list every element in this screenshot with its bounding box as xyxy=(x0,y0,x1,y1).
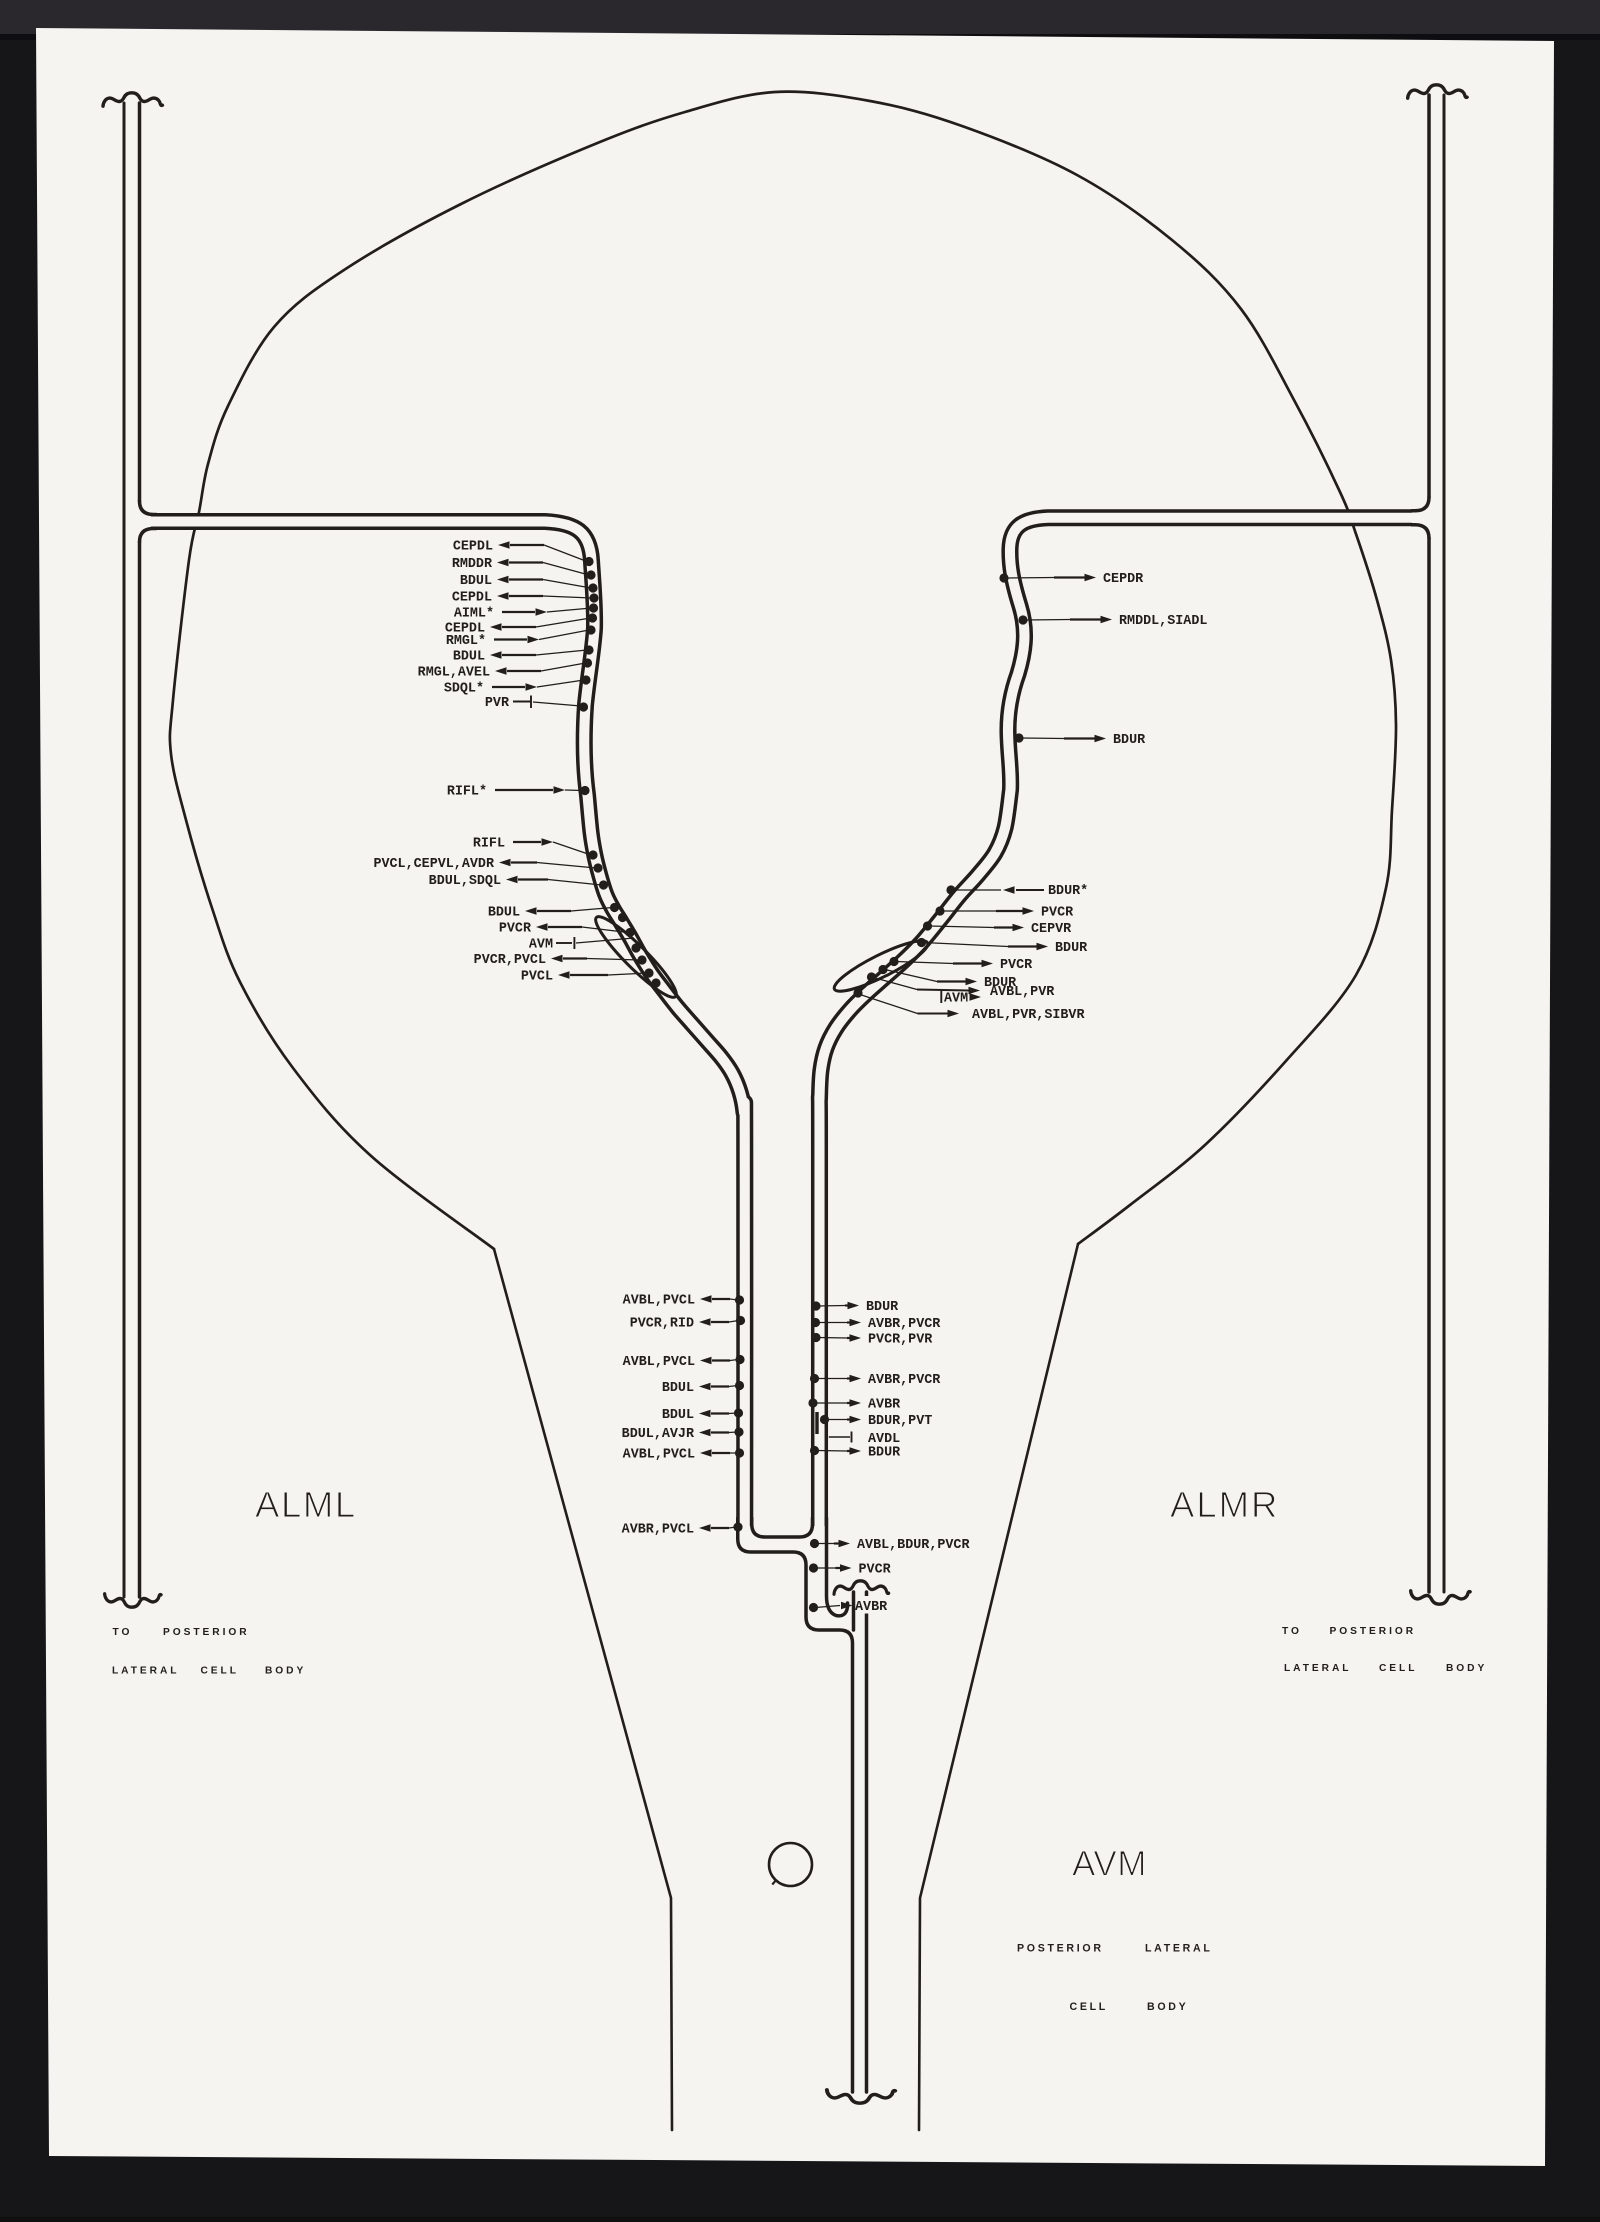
svg-text:RIFL: RIFL xyxy=(473,837,505,852)
svg-text:POSTERIOR: POSTERIOR xyxy=(1330,1626,1417,1637)
svg-text:AVBL,BDUR,PVCR: AVBL,BDUR,PVCR xyxy=(857,1538,970,1553)
svg-text:CELL: CELL xyxy=(1070,2001,1108,2013)
svg-text:BDUL,AVJR: BDUL,AVJR xyxy=(622,1427,695,1442)
svg-text:CEPDR: CEPDR xyxy=(1103,572,1144,587)
svg-text:TO: TO xyxy=(1282,1626,1302,1637)
svg-text:POSTERIOR: POSTERIOR xyxy=(1017,1943,1104,1955)
svg-text:AIML*: AIML* xyxy=(454,607,494,622)
svg-text:LATERAL: LATERAL xyxy=(1145,1943,1213,1955)
svg-text:CEPVR: CEPVR xyxy=(1031,922,1072,937)
svg-text:POSTERIOR: POSTERIOR xyxy=(163,1627,250,1638)
svg-text:AVM: AVM xyxy=(529,938,553,953)
svg-text:PVCR: PVCR xyxy=(499,922,532,937)
svg-text:PVCR: PVCR xyxy=(859,1563,892,1578)
svg-text:LATERAL: LATERAL xyxy=(112,1666,179,1677)
svg-text:AVBL,PVCL: AVBL,PVCL xyxy=(623,1355,695,1370)
svg-text:CEPDL: CEPDL xyxy=(453,540,493,555)
svg-text:AVBL,PVR: AVBL,PVR xyxy=(990,985,1055,1000)
svg-text:RIFL*: RIFL* xyxy=(447,785,487,800)
svg-text:ALMR: ALMR xyxy=(1170,1484,1279,1525)
svg-text:BDUL: BDUL xyxy=(662,1381,694,1396)
svg-text:PVCR: PVCR xyxy=(1000,958,1033,973)
svg-text:BODY: BODY xyxy=(265,1666,306,1677)
svg-text:BDUL: BDUL xyxy=(488,906,520,921)
svg-text:PVCR: PVCR xyxy=(1041,906,1074,921)
svg-text:PVCR,PVR: PVCR,PVR xyxy=(868,1333,933,1348)
svg-text:BODY: BODY xyxy=(1147,2001,1188,2013)
svg-text:PVCR,RID: PVCR,RID xyxy=(630,1317,694,1332)
svg-text:BDUL,SDQL: BDUL,SDQL xyxy=(429,874,501,889)
svg-text:AVBR: AVBR xyxy=(868,1398,901,1413)
svg-text:ALML: ALML xyxy=(255,1484,357,1525)
svg-text:BODY: BODY xyxy=(1446,1663,1487,1674)
svg-text:PVR: PVR xyxy=(485,696,510,711)
svg-text:BDUR: BDUR xyxy=(866,1300,899,1315)
svg-text:AVBR,PVCR: AVBR,PVCR xyxy=(868,1373,941,1388)
svg-text:CEPDL: CEPDL xyxy=(452,591,492,606)
svg-text:AVBR,PVCL: AVBR,PVCL xyxy=(622,1523,694,1538)
svg-text:RMDDR: RMDDR xyxy=(452,557,493,572)
svg-text:SDQL*: SDQL* xyxy=(444,682,484,697)
svg-text:BDUL: BDUL xyxy=(460,574,492,589)
svg-text:PVCL,CEPVL,AVDR: PVCL,CEPVL,AVDR xyxy=(373,857,494,872)
svg-text:BDUL: BDUL xyxy=(453,650,485,665)
svg-text:BDUR,PVT: BDUR,PVT xyxy=(868,1414,932,1429)
svg-text:AVM: AVM xyxy=(944,992,968,1007)
svg-text:PVCR,PVCL: PVCR,PVCL xyxy=(474,953,546,968)
svg-text:BDUR: BDUR xyxy=(1055,941,1088,956)
svg-text:BDUL: BDUL xyxy=(662,1408,694,1423)
svg-text:BDUR: BDUR xyxy=(1113,733,1146,748)
svg-text:CELL: CELL xyxy=(201,1666,239,1677)
svg-text:AVBL,PVR,SIBVR: AVBL,PVR,SIBVR xyxy=(972,1008,1085,1023)
svg-text:AVBR,PVCR: AVBR,PVCR xyxy=(868,1317,941,1332)
svg-text:AVBL,PVCL: AVBL,PVCL xyxy=(623,1448,695,1463)
svg-text:RMGL,AVEL: RMGL,AVEL xyxy=(418,666,490,681)
svg-text:LATERAL: LATERAL xyxy=(1284,1663,1351,1674)
svg-text:BDUR: BDUR xyxy=(868,1446,901,1461)
svg-text:RMGL*: RMGL* xyxy=(446,634,486,649)
svg-text:TO: TO xyxy=(113,1627,133,1638)
svg-text:AVBR: AVBR xyxy=(855,1600,888,1615)
svg-text:AVBL,PVCL: AVBL,PVCL xyxy=(623,1294,695,1309)
svg-text:BDUR*: BDUR* xyxy=(1048,884,1088,899)
svg-text:PVCL: PVCL xyxy=(521,970,553,985)
svg-text:AVM: AVM xyxy=(1072,1845,1147,1884)
svg-text:RMDDL,SIADL: RMDDL,SIADL xyxy=(1119,614,1207,629)
svg-text:CELL: CELL xyxy=(1379,1663,1417,1674)
